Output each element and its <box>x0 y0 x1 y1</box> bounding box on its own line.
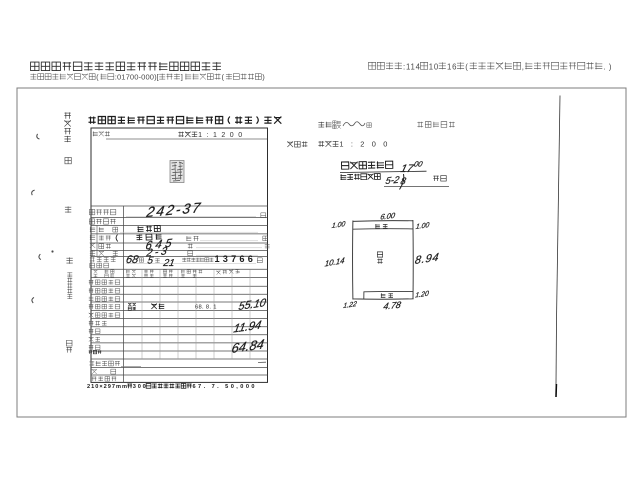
svg-text:68. 8. 1: 68. 8. 1 <box>195 305 217 311</box>
svg-text::01700-000)[: :01700-000)[ <box>115 73 160 82</box>
svg-text:10: 10 <box>429 62 439 71</box>
svg-text:21: 21 <box>161 258 175 269</box>
svg-text:]: ] <box>181 73 183 82</box>
svg-text:13766: 13766 <box>215 254 257 264</box>
svg-text:(: ( <box>465 62 468 71</box>
svg-text:300: 300 <box>133 384 146 390</box>
svg-text:6.00: 6.00 <box>380 211 397 222</box>
svg-text:16: 16 <box>447 62 457 71</box>
svg-text:,: , <box>522 62 524 71</box>
svg-text:210×297mm: 210×297mm <box>87 384 127 390</box>
svg-text::114: :114 <box>403 62 421 71</box>
svg-text:4.78: 4.78 <box>383 300 403 312</box>
